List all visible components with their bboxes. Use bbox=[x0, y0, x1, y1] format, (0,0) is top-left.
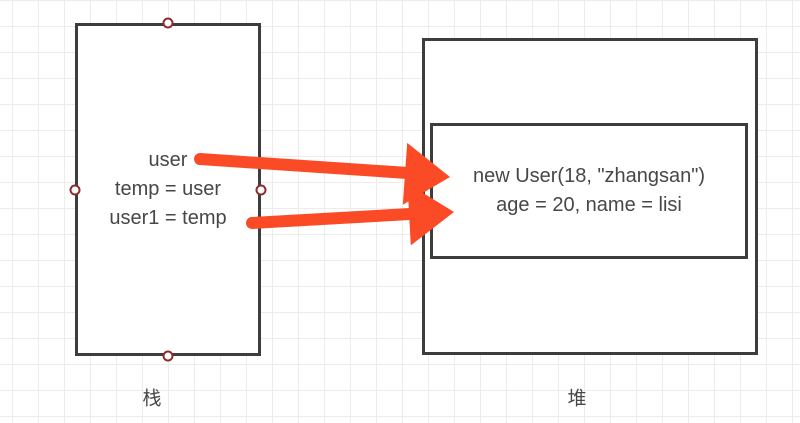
connection-handle-left[interactable] bbox=[70, 185, 81, 196]
stack-line-user: user bbox=[149, 146, 188, 175]
heap-label[interactable]: 堆 bbox=[567, 384, 586, 411]
stack-line-temp: temp = user bbox=[115, 175, 221, 204]
heap-object-rectangle[interactable]: new User(18, "zhangsan") age = 20, name … bbox=[430, 123, 748, 259]
object-line-constructor: new User(18, "zhangsan") bbox=[473, 162, 705, 191]
heap-object-text: new User(18, "zhangsan") age = 20, name … bbox=[433, 126, 745, 256]
stack-line-user1: user1 = temp bbox=[109, 204, 226, 233]
connection-handle-right[interactable] bbox=[256, 185, 267, 196]
diagram-canvas[interactable]: user temp = user user1 = temp new User(1… bbox=[0, 0, 800, 423]
stack-rectangle[interactable]: user temp = user user1 = temp bbox=[75, 23, 261, 356]
object-line-fields: age = 20, name = lisi bbox=[496, 191, 682, 220]
stack-variables-text: user temp = user user1 = temp bbox=[78, 26, 258, 353]
connection-handle-bottom[interactable] bbox=[163, 351, 174, 362]
connection-handle-top[interactable] bbox=[163, 18, 174, 29]
stack-label[interactable]: 栈 bbox=[142, 384, 161, 411]
